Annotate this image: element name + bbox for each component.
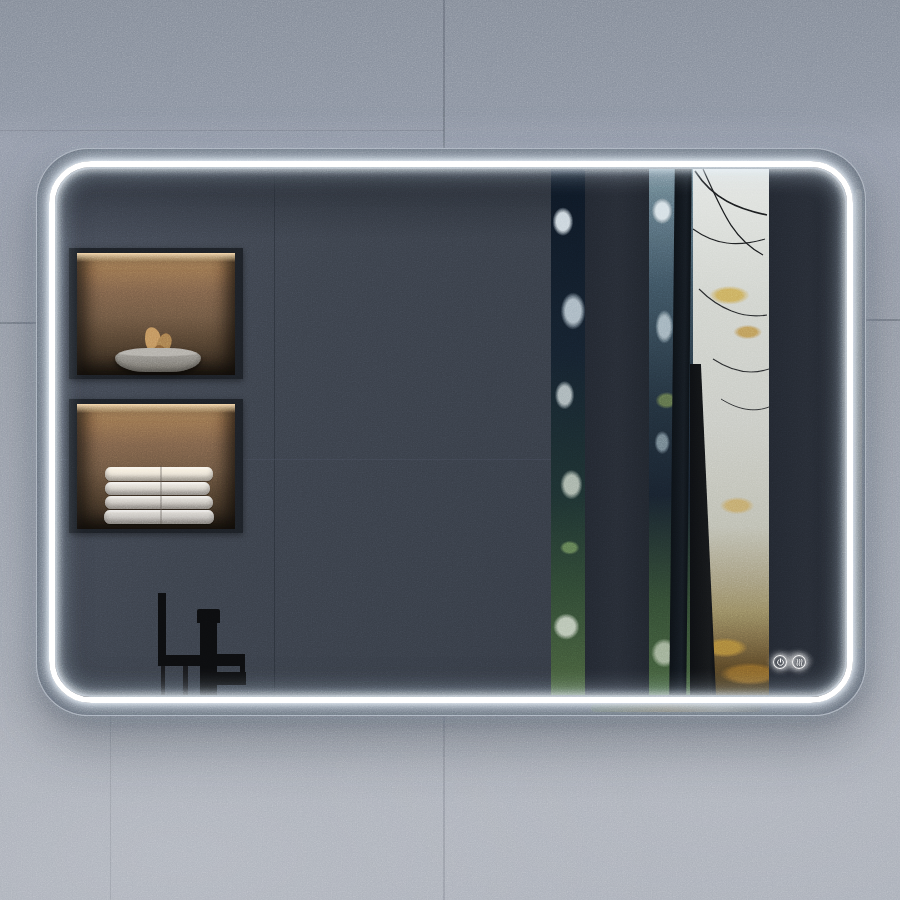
folded-towel [104, 510, 214, 524]
touch-controls [771, 652, 815, 672]
faucet-leg [161, 666, 165, 695]
tile-seam-horizontal-left [0, 322, 40, 324]
niche-light [77, 404, 235, 413]
demister-button[interactable] [792, 655, 806, 669]
niche-light [77, 253, 235, 262]
window-mullion [769, 169, 845, 695]
tile-seam-horizontal-right [860, 319, 900, 321]
black-faucet [152, 589, 272, 695]
branch-silhouettes [693, 169, 769, 429]
tile-seam-vertical-bottom [443, 712, 445, 900]
stone-bowl [115, 348, 201, 372]
niche-lower [69, 399, 243, 533]
folded-towel [105, 467, 213, 481]
faucet-crossbar [158, 655, 206, 666]
faucet-handle [158, 593, 166, 659]
power-icon [776, 658, 785, 667]
tree-trunk [669, 169, 691, 695]
niche-upper [69, 248, 243, 379]
niche-lower-interior [77, 404, 235, 529]
faucet-lower-arm [217, 672, 246, 685]
reflected-tile-seam-vertical [274, 169, 275, 695]
towel-stack [105, 466, 213, 524]
tile-seam-vertical-faint [110, 712, 111, 900]
faucet-leg [183, 666, 188, 695]
mirror-edge-reflection-right [855, 189, 862, 649]
tile-seam-horizontal-faint [0, 130, 444, 131]
mirror-reflection [57, 169, 845, 695]
folded-towel [105, 496, 213, 509]
forest-strip-bright [693, 169, 769, 695]
bathroom-scene [0, 0, 900, 900]
demister-icon [795, 658, 804, 667]
mirror-edge-reflection-bottom [591, 704, 761, 712]
power-button[interactable] [773, 655, 787, 669]
towel-fold-line [160, 466, 162, 524]
led-mirror [36, 148, 866, 716]
window-forest-view [551, 169, 845, 695]
window-mullion [585, 169, 649, 695]
niche-upper-interior [77, 253, 235, 375]
folded-towel [105, 482, 210, 495]
forest-strip-left [551, 169, 585, 695]
forest-strip-middle [649, 169, 693, 695]
tile-seam-vertical-top [443, 0, 445, 150]
